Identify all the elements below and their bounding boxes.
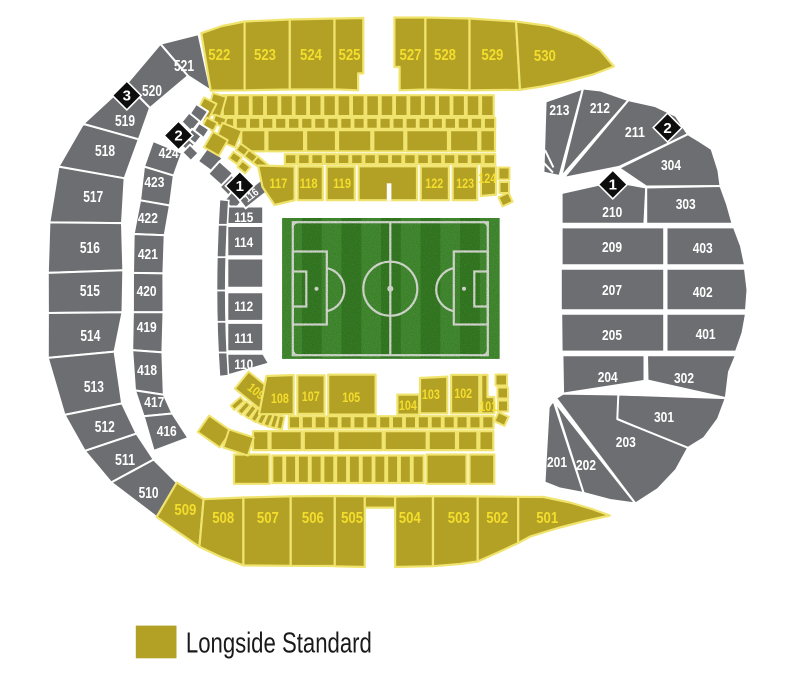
svg-text:514: 514 [80, 328, 100, 345]
svg-text:203: 203 [616, 434, 636, 451]
svg-text:103: 103 [422, 387, 440, 402]
svg-text:210: 210 [602, 204, 622, 221]
svg-text:510: 510 [139, 485, 159, 502]
svg-text:521: 521 [174, 58, 194, 75]
svg-text:124: 124 [478, 171, 496, 186]
svg-text:2: 2 [663, 120, 671, 137]
svg-text:205: 205 [602, 327, 622, 344]
svg-text:512: 512 [95, 419, 115, 436]
svg-text:401: 401 [696, 326, 716, 343]
svg-text:505: 505 [341, 510, 363, 527]
svg-text:302: 302 [674, 370, 694, 387]
svg-text:420: 420 [137, 283, 157, 300]
svg-text:102: 102 [454, 386, 472, 401]
svg-text:114: 114 [234, 234, 253, 250]
svg-text:518: 518 [95, 143, 115, 160]
svg-text:509: 509 [174, 502, 196, 519]
svg-text:525: 525 [339, 47, 361, 64]
svg-text:2: 2 [174, 128, 182, 145]
svg-text:105: 105 [342, 390, 360, 405]
svg-text:402: 402 [693, 284, 713, 301]
svg-text:213: 213 [549, 102, 569, 119]
svg-text:524: 524 [300, 47, 322, 64]
svg-text:508: 508 [212, 510, 234, 527]
svg-text:528: 528 [434, 47, 456, 64]
svg-text:503: 503 [448, 510, 470, 527]
svg-text:1: 1 [236, 178, 244, 195]
svg-text:418: 418 [137, 362, 157, 379]
svg-text:513: 513 [84, 379, 104, 396]
svg-text:107: 107 [302, 389, 320, 404]
svg-text:207: 207 [602, 282, 622, 299]
svg-text:101: 101 [479, 399, 497, 414]
svg-text:304: 304 [661, 157, 682, 174]
svg-text:529: 529 [481, 47, 503, 64]
svg-text:507: 507 [257, 510, 279, 527]
svg-text:122: 122 [425, 176, 443, 191]
svg-text:112: 112 [234, 298, 253, 314]
svg-text:117: 117 [269, 176, 287, 191]
svg-text:416: 416 [157, 423, 177, 440]
svg-text:111: 111 [234, 330, 253, 346]
svg-text:520: 520 [142, 83, 162, 100]
svg-text:118: 118 [300, 176, 318, 191]
svg-text:1: 1 [609, 177, 617, 194]
svg-text:422: 422 [138, 210, 158, 227]
svg-text:515: 515 [80, 283, 100, 300]
svg-text:506: 506 [302, 510, 324, 527]
svg-text:211: 211 [625, 124, 645, 141]
svg-text:419: 419 [137, 319, 157, 336]
svg-text:110: 110 [234, 356, 253, 372]
svg-text:303: 303 [676, 196, 696, 213]
svg-text:Longside Standard: Longside Standard [186, 628, 372, 660]
svg-text:517: 517 [83, 189, 103, 206]
svg-text:209: 209 [602, 239, 622, 256]
svg-text:519: 519 [115, 113, 135, 130]
svg-text:516: 516 [80, 240, 100, 257]
svg-text:523: 523 [254, 47, 276, 64]
svg-text:123: 123 [456, 176, 474, 191]
svg-text:502: 502 [486, 510, 508, 527]
svg-text:212: 212 [590, 100, 610, 117]
svg-text:201: 201 [547, 454, 567, 471]
svg-text:115: 115 [234, 209, 253, 225]
svg-text:202: 202 [576, 457, 596, 474]
svg-text:527: 527 [400, 47, 422, 64]
svg-text:421: 421 [138, 246, 158, 263]
svg-text:504: 504 [399, 510, 421, 527]
svg-text:423: 423 [144, 174, 164, 191]
svg-text:3: 3 [123, 88, 131, 105]
svg-text:417: 417 [144, 394, 164, 411]
svg-text:530: 530 [534, 48, 556, 65]
svg-text:511: 511 [115, 452, 135, 469]
svg-text:119: 119 [333, 176, 351, 191]
svg-text:108: 108 [271, 391, 289, 406]
svg-text:104: 104 [399, 398, 417, 413]
svg-text:403: 403 [693, 240, 713, 257]
svg-text:501: 501 [536, 510, 558, 527]
svg-text:522: 522 [208, 47, 230, 64]
svg-text:204: 204 [598, 369, 619, 386]
svg-text:301: 301 [654, 409, 674, 426]
